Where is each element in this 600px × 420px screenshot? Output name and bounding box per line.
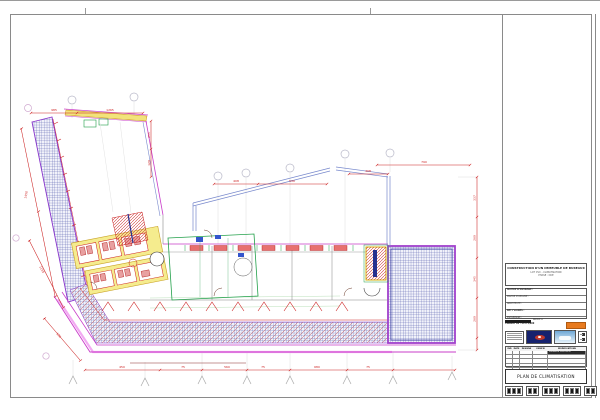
mini-line: [580, 334, 583, 335]
stamp-group: [563, 386, 581, 396]
level-markers: [69, 372, 456, 386]
dimension-label: 530: [289, 179, 295, 183]
core-rooms: [71, 212, 352, 300]
stamp-group: [526, 386, 539, 396]
dimension-label: 450: [119, 365, 125, 369]
dimension-label: 985: [51, 108, 57, 112]
dimension-label: 75: [181, 365, 185, 369]
bottom-grating-band: [70, 284, 388, 343]
stair-right: [364, 245, 388, 296]
dimension-label: 680: [314, 365, 320, 369]
company-logo: [526, 330, 552, 344]
sky-logo: [554, 330, 576, 344]
dimension-label: 408: [365, 169, 371, 173]
dimension-label: 75: [261, 365, 265, 369]
dimension-label: 255: [147, 132, 151, 138]
logo-text-line: [507, 339, 522, 340]
dimension-label: 345: [473, 276, 477, 282]
revision-table: IND DATE DESSINE VERIFIE MODIFICATIONS P…: [505, 346, 587, 367]
dimension-label: 75: [366, 365, 370, 369]
terrace-grating: [388, 246, 455, 343]
titleblock-parties-box: MAITRE D'OUVRAGE : MAITRE D'OEUVRE : ARC…: [505, 288, 587, 319]
dimension-label: 1265: [106, 108, 114, 112]
logo-emblem-dot: [538, 336, 541, 338]
indice-label: INDICE A: [533, 319, 563, 322]
titleblock-project-box: CONSTRUCTION D'UN IMMEUBLE DE BUREAUX LO…: [505, 263, 587, 286]
left-grating-strip: [32, 117, 89, 302]
dimension-label: 260: [473, 235, 477, 241]
party-row: ARCHITECTE :: [506, 302, 586, 309]
logo-text-line: [507, 335, 522, 336]
orange-stamp: [566, 322, 586, 329]
dimension-label: 337: [473, 195, 477, 201]
cad-app-canvas: { "palette": { "magenta": "#c93ec9", "pu…: [0, 0, 600, 420]
party-row: MAITRE D'OEUVRE :: [506, 295, 586, 302]
project-phase: PHASE : DCE: [506, 274, 586, 277]
legend-mini-box: [578, 331, 587, 343]
dimension-label: 260: [473, 316, 477, 322]
logo-text-line: [507, 333, 522, 334]
drawing-title: PLAN DE CLIMATISATION: [517, 374, 575, 379]
cloud-shape: [559, 336, 571, 340]
green-construction-lines: [150, 296, 340, 308]
format-label: FORMAT A1 - ECH 1/100: [505, 323, 563, 326]
mini-line: [580, 339, 583, 340]
drawing-title-box: PLAN DE CLIMATISATION: [505, 369, 587, 384]
dimension-label: 120: [147, 160, 151, 166]
stamp-strip: [505, 386, 587, 396]
logo-text-line: [507, 337, 522, 338]
dimension-label: 1165: [38, 265, 45, 274]
dimension-label: 790: [421, 160, 427, 164]
stamp-group: [505, 386, 523, 396]
logo-text-box: [505, 331, 524, 344]
stamp-group: [584, 386, 597, 396]
dimension-label: 408: [233, 179, 239, 183]
dimension-label: 560: [224, 365, 230, 369]
dimension-label: 1450: [23, 191, 28, 199]
stamp-group: [542, 386, 560, 396]
party-row: BET FLUIDES :: [506, 309, 586, 316]
